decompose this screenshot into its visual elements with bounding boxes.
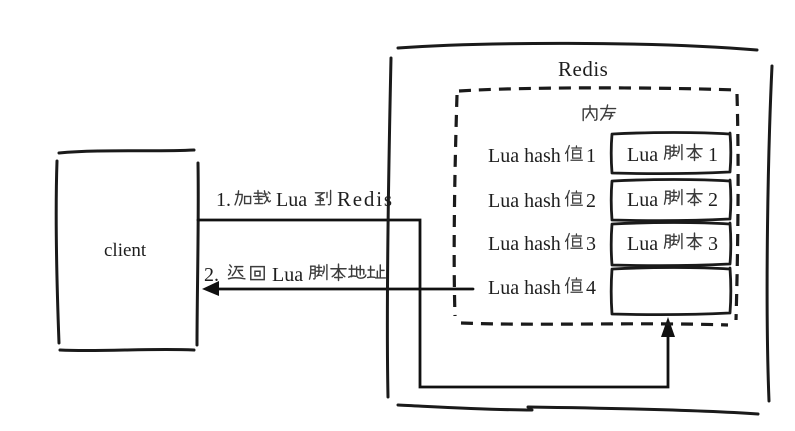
svg-text:Lua hash: Lua hash [488,277,561,299]
svg-text:Lua: Lua [276,189,307,211]
svg-text:client: client [104,240,147,261]
svg-text:3: 3 [586,233,596,255]
svg-text:1: 1 [708,144,718,166]
svg-text:2: 2 [708,189,718,211]
svg-text:Redis: Redis [558,57,608,81]
svg-text:2: 2 [586,190,596,212]
svg-text:4: 4 [586,277,596,299]
svg-text:Lua: Lua [272,264,303,286]
svg-text:1: 1 [586,145,596,167]
svg-text:Lua hash: Lua hash [488,145,561,167]
svg-text:Lua hash: Lua hash [488,190,561,212]
svg-text:Lua: Lua [627,189,658,211]
svg-text:Lua: Lua [627,144,658,166]
svg-text:3: 3 [708,233,718,255]
svg-text:2.: 2. [204,264,219,286]
svg-text:Lua: Lua [627,233,658,255]
svg-text:Lua hash: Lua hash [488,233,561,255]
svg-text:Redis: Redis [337,187,394,211]
svg-text:1.: 1. [216,189,231,211]
